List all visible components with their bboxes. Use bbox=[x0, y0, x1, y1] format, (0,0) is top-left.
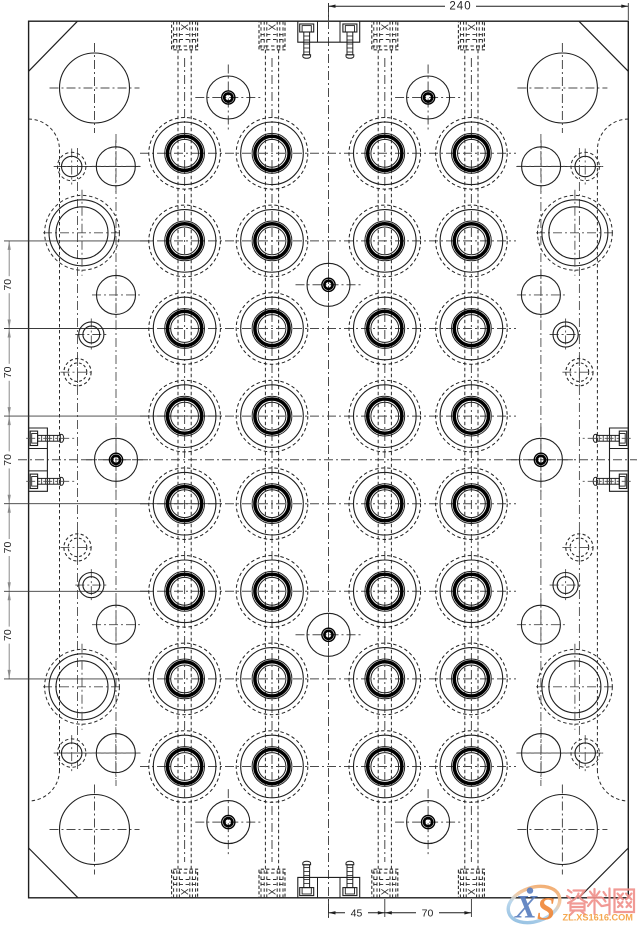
svg-text:70: 70 bbox=[2, 542, 14, 554]
svg-text:70: 70 bbox=[2, 279, 14, 291]
svg-text:240: 240 bbox=[449, 1, 471, 13]
svg-text:70: 70 bbox=[2, 366, 14, 378]
svg-text:ZL.XS1616.COM: ZL.XS1616.COM bbox=[563, 913, 634, 923]
svg-text:X: X bbox=[514, 890, 538, 926]
svg-text:70: 70 bbox=[422, 908, 434, 920]
svg-text:S: S bbox=[537, 892, 555, 928]
svg-text:45: 45 bbox=[351, 908, 363, 920]
svg-text:70: 70 bbox=[2, 629, 14, 641]
svg-text:70: 70 bbox=[2, 454, 14, 466]
